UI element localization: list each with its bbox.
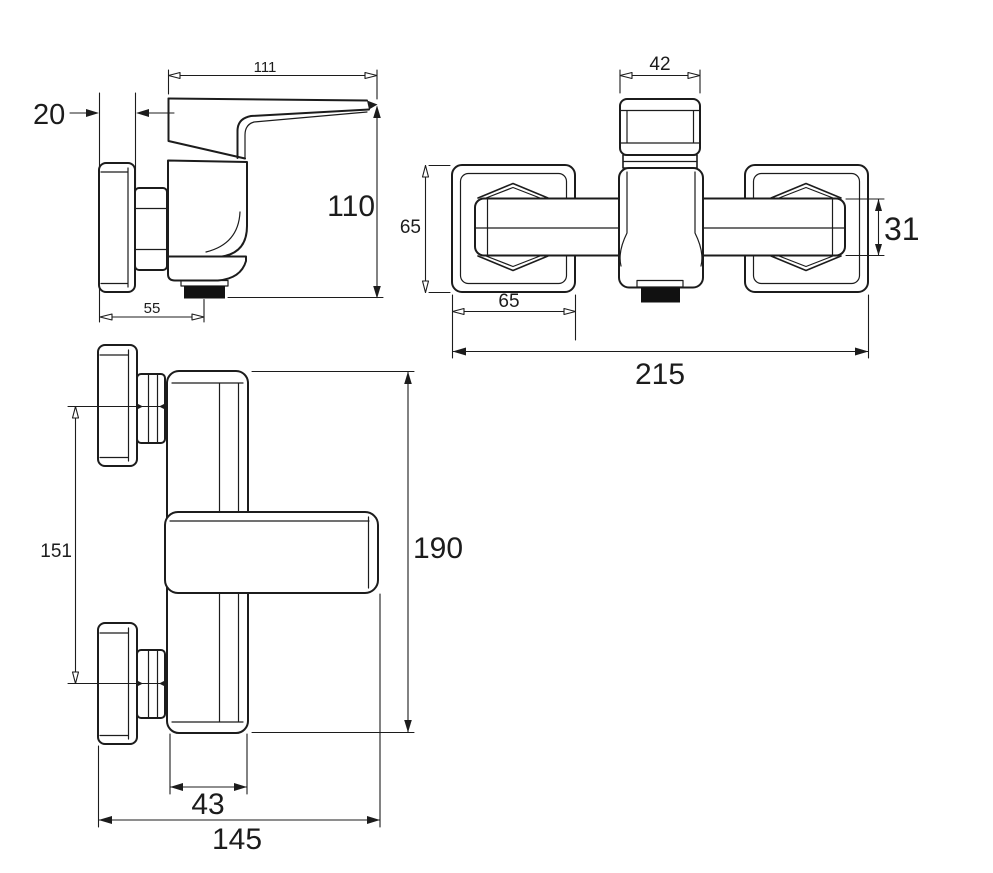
dim-42: 42	[620, 54, 700, 93]
spout-aerator	[184, 286, 225, 299]
dim-55: 55	[100, 300, 204, 323]
front-view: 151 190 43 145	[40, 345, 463, 856]
dim-20: 20	[33, 99, 174, 131]
body-lower-housing	[168, 257, 246, 281]
dim-label-145: 145	[212, 823, 262, 856]
dim-label-110: 110	[327, 190, 375, 223]
dim-label-190: 190	[413, 532, 463, 565]
dim-label-43: 43	[191, 788, 224, 821]
lever-underside-inner	[245, 112, 367, 159]
spout-aerator-top	[641, 288, 680, 303]
hex-nut	[135, 188, 167, 270]
handle-top	[620, 99, 700, 155]
dim-label-65-horizontal: 65	[498, 291, 519, 312]
mixer-body	[168, 161, 247, 257]
side-view: 111 20 110 55	[33, 59, 383, 322]
top-view: 42 65 31 65 215	[400, 54, 920, 391]
lever-tip	[367, 101, 378, 110]
wall-plate	[99, 163, 135, 292]
cartridge-housing	[169, 99, 246, 159]
lever-handle-front	[165, 512, 378, 593]
wall-plate-upper	[98, 345, 137, 466]
mixer-dimensional-drawing: 111 20 110 55	[0, 0, 993, 873]
dim-label-215: 215	[635, 358, 685, 391]
dim-label-55: 55	[144, 300, 161, 317]
lever-underside	[238, 110, 370, 159]
dim-43: 43	[170, 734, 247, 821]
dim-110: 110	[228, 106, 383, 299]
dim-65-vertical: 65	[400, 166, 450, 293]
dim-label-151: 151	[40, 541, 72, 562]
technical-drawing-page: 111 20 110 55	[0, 0, 993, 873]
dim-label-31: 31	[884, 211, 920, 247]
dim-label-111: 111	[254, 59, 277, 76]
dim-111: 111	[169, 59, 378, 99]
dim-65-horizontal: 65	[453, 291, 576, 340]
lever-top-edge	[169, 99, 368, 101]
dim-label-20: 20	[33, 99, 65, 131]
dim-label-65-vertical: 65	[400, 217, 421, 238]
center-body	[619, 168, 703, 288]
dim-label-42: 42	[649, 54, 670, 75]
hex-nut-upper	[137, 374, 165, 443]
